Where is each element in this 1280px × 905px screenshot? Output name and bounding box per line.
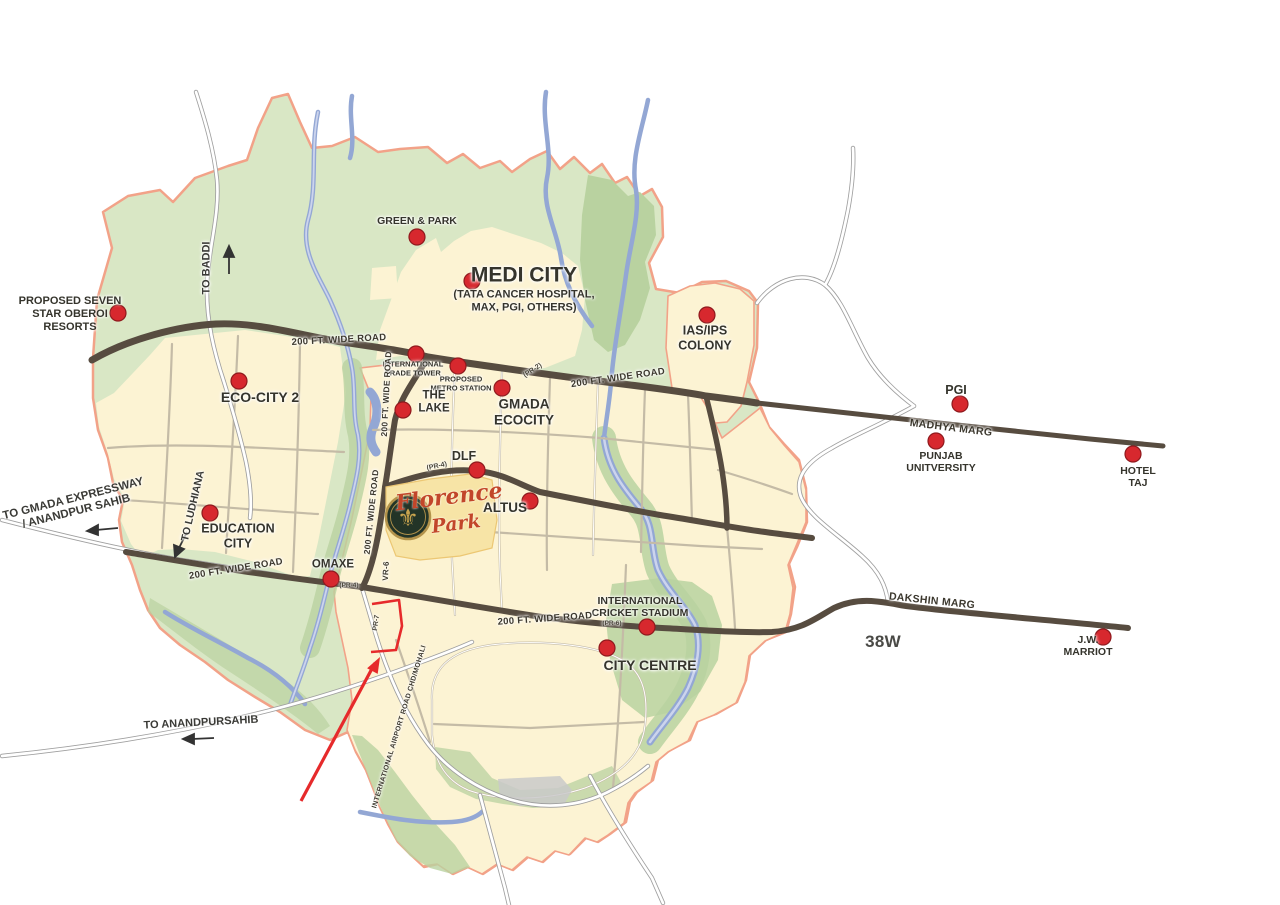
marker-pgi — [952, 396, 968, 412]
marker-jw-marriot — [1095, 629, 1111, 645]
fleur-de-lis-icon: ⚜ — [397, 504, 419, 532]
marker-proposed-seven-star-oberoi-resorts — [110, 305, 126, 321]
marker-international-cricket-stadium — [639, 619, 655, 635]
marker-proposed-metro-station — [450, 358, 466, 374]
marker-ias-ips-colony — [699, 307, 715, 323]
urban-island — [370, 266, 398, 300]
marker-eco-city-2 — [231, 373, 247, 389]
river-topleft — [350, 96, 352, 158]
to-gmada-arrow-icon — [87, 525, 118, 535]
marker-city-centre — [599, 640, 615, 656]
map-stage: ⚜ Florence Park PRO — [0, 0, 1280, 905]
map-base-svg: ⚜ — [0, 0, 1280, 905]
marker-the-lake — [395, 402, 411, 418]
marker-dlf — [469, 462, 485, 478]
marker-international-trade-tower — [408, 346, 424, 362]
marker-punjab-university — [928, 433, 944, 449]
marker-education-city — [202, 505, 218, 521]
marker-altus — [522, 493, 538, 509]
marker-omaxe — [323, 571, 339, 587]
marker-medi-city — [464, 273, 480, 289]
road-ne-spur — [825, 148, 853, 285]
marker-gmada-ecocity — [494, 380, 510, 396]
florence-park-site: ⚜ — [386, 474, 497, 560]
the-lake-water — [370, 392, 377, 452]
marker-hotel-taj — [1125, 446, 1141, 462]
marker-green-and-park — [409, 229, 425, 245]
to-anandpursahib-arrow-icon — [183, 734, 214, 744]
